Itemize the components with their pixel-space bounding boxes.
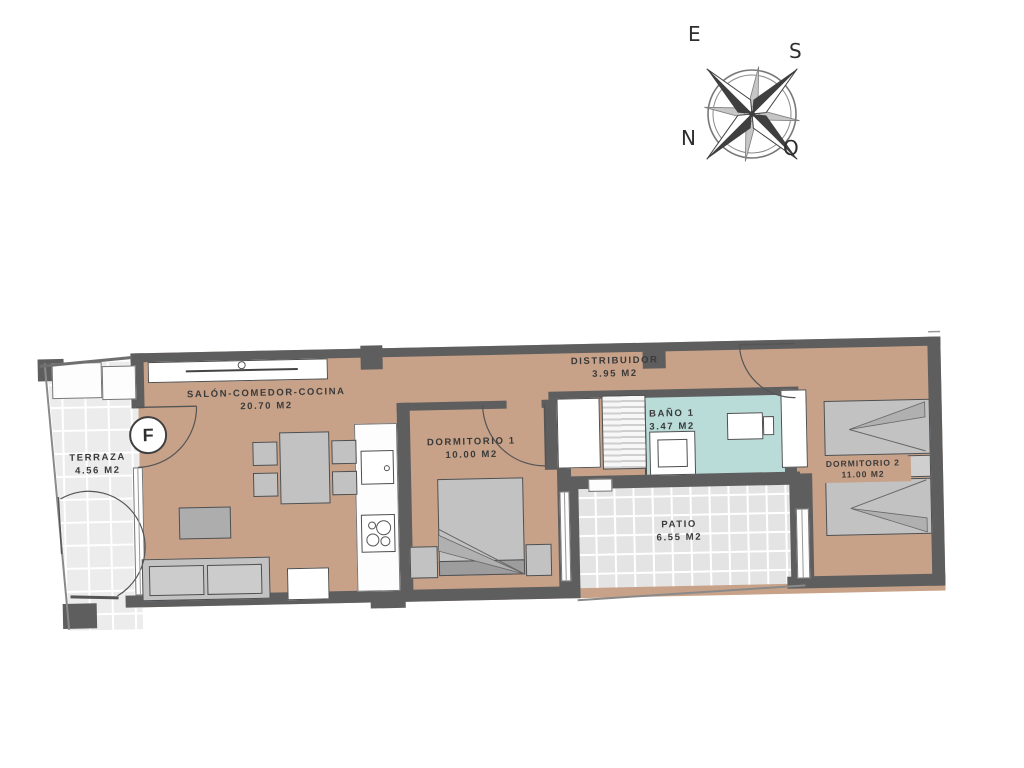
nightstand-icon [526, 544, 553, 577]
bed-icon [825, 478, 932, 536]
dorm2-door-panel [780, 389, 808, 468]
compass-rose: E S N O [672, 17, 832, 177]
room-label-terraza: TERRAZA 4.56 M2 [55, 451, 140, 478]
toilet-tank [763, 416, 774, 435]
shower-tray-inner [657, 439, 688, 468]
apartment-plan: F SALÓN-COMEDOR-COCINA 20.70 M2 DORMITOR… [35, 329, 946, 648]
patio-niche [588, 478, 612, 491]
room-area: 10.00 M2 [412, 448, 532, 463]
toilet-icon [727, 412, 764, 440]
bed-icon [824, 399, 931, 456]
column [360, 345, 382, 369]
room-label-distribuidor: DISTRIBUIDOR 3.95 M2 [540, 354, 691, 383]
chair-icon [332, 471, 357, 496]
sofa-cushion [207, 564, 263, 595]
floor-plan-page: E S N O [0, 0, 1024, 768]
terraza-top-room [102, 365, 137, 400]
room-area: 11.00 M2 [817, 469, 909, 482]
wall-bottom-notch [370, 590, 405, 609]
room-label-dormitorio2: DORMITORIO 2 11.00 M2 [815, 456, 912, 483]
chair-icon [252, 441, 277, 466]
nightstand-icon [410, 546, 439, 579]
room-label-bano1: BAÑO 1 3.47 M2 [627, 407, 718, 435]
closet [556, 398, 600, 469]
terraza-top-room [52, 362, 103, 399]
room-label-salon: SALÓN-COMEDOR-COCINA 20.70 M2 [146, 385, 386, 416]
room-area: 3.47 M2 [627, 420, 717, 435]
tv-knob-icon [238, 361, 246, 369]
dining-table-icon [279, 431, 330, 504]
compass-east-label: E [688, 22, 701, 46]
room-area: 4.56 M2 [56, 464, 140, 479]
side-table [287, 567, 330, 600]
compass-south-label: S [789, 39, 802, 63]
terraza-floor [38, 359, 144, 631]
room-label-patio: PATIO 6.55 M2 [629, 518, 730, 546]
coffee-table-icon [179, 506, 232, 539]
bed-headboard [439, 559, 525, 576]
room-area: 6.55 M2 [629, 531, 729, 546]
chair-icon [331, 440, 356, 465]
sofa-cushion [149, 565, 205, 596]
compass-north-label: N [681, 126, 696, 150]
chair-icon [253, 472, 278, 497]
room-name: DORMITORIO 1 [411, 435, 531, 450]
wall-block [63, 603, 98, 629]
room-label-dormitorio1: DORMITORIO 1 10.00 M2 [411, 435, 532, 463]
compass-west-label: O [783, 136, 799, 160]
window-dorm1-patio [559, 491, 571, 581]
kitchen-counter [354, 423, 401, 592]
unit-letter: F [142, 425, 153, 446]
nightstand-icon [908, 455, 931, 477]
window-patio-dorm2 [796, 508, 810, 578]
